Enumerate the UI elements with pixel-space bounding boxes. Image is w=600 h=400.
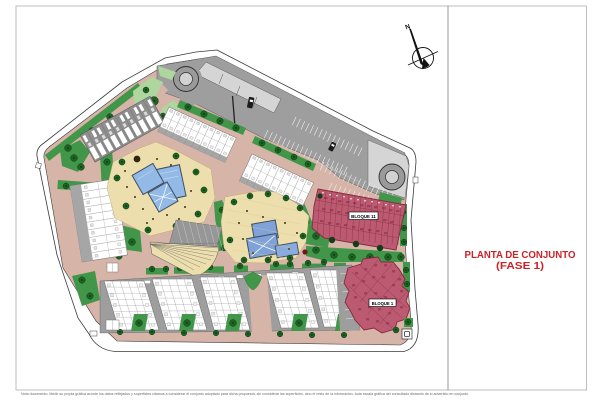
svg-text:BLOQUE 1: BLOQUE 1 — [372, 301, 394, 306]
svg-text:Nota documento: Medir su propi: Nota documento: Medir su propia gráfica … — [21, 392, 469, 396]
svg-text:BLOQUE 11: BLOQUE 11 — [351, 214, 376, 219]
svg-text:(FASE 1): (FASE 1) — [496, 260, 544, 272]
